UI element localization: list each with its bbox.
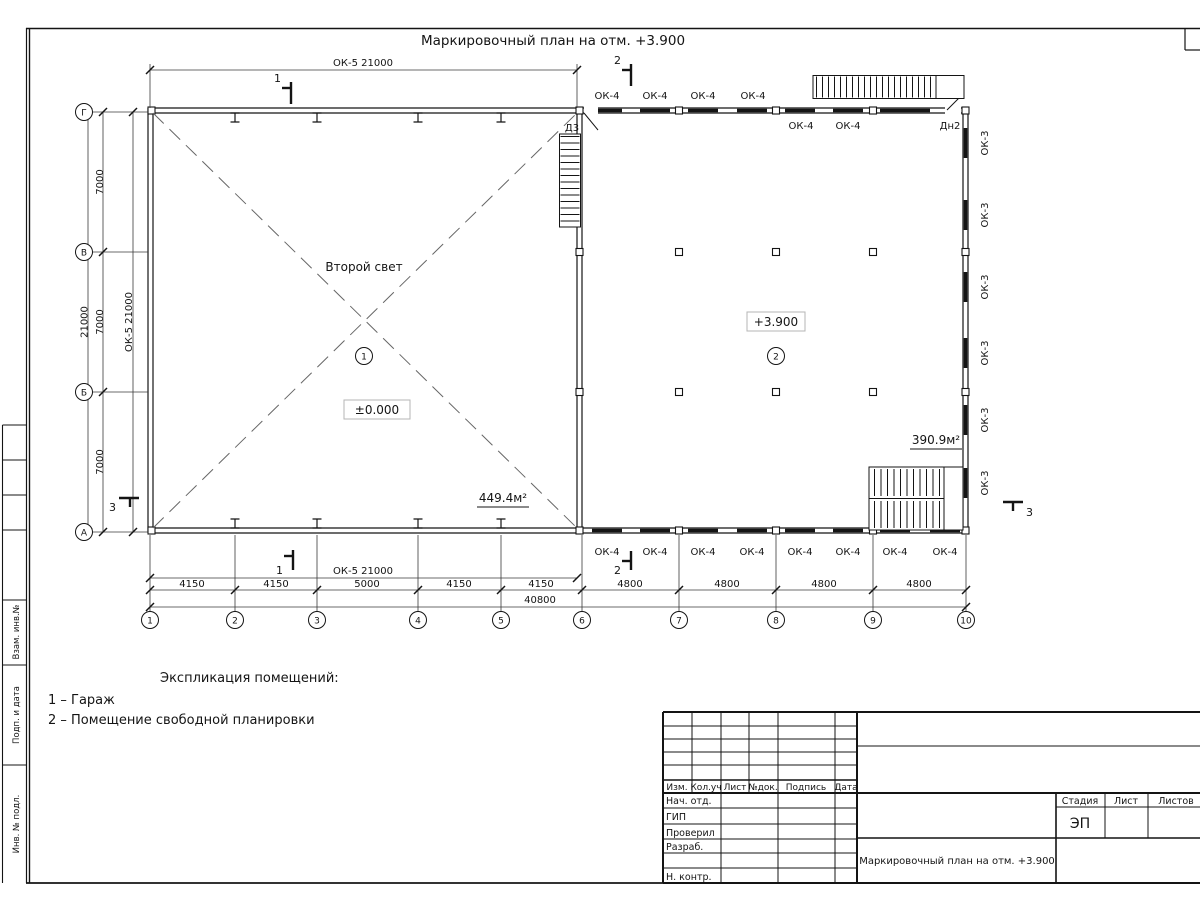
legend-item-1: 1 – Гараж xyxy=(48,693,115,708)
dim-bay: 4800 xyxy=(714,579,739,590)
dim-bay: 4800 xyxy=(811,579,836,590)
ok3-label: ОК-3 xyxy=(980,408,991,433)
room-annotations: Второй свет 1 ±0.000 2 +3.900 449.4м² 39… xyxy=(153,113,962,528)
drawing-sheet: Взам. инв.№ Подп. и дата Инв. № подл. Ма… xyxy=(0,0,1200,900)
ok4-label: ОК-4 xyxy=(836,121,861,132)
tb-stage-header: Стадия xyxy=(1062,796,1098,807)
tb-row-gip: ГИП xyxy=(666,812,686,823)
axis-label: 7 xyxy=(676,617,682,627)
ok4-label: ОК-4 xyxy=(595,91,620,102)
room2-area: 390.9м² xyxy=(912,433,960,447)
axis-label: В xyxy=(81,249,87,259)
axis-label: Г xyxy=(81,109,87,119)
room1-area: 449.4м² xyxy=(479,491,527,505)
tb-col-ndok: №док. xyxy=(748,783,777,793)
dim-7000: 7000 xyxy=(95,449,106,474)
ok4-label: ОК-4 xyxy=(883,547,908,558)
tb-sheets-header: Листов xyxy=(1158,796,1194,807)
column-mark xyxy=(497,519,506,528)
dim-total: 40800 xyxy=(524,595,556,606)
section-1-label: 1 xyxy=(274,72,281,85)
dim-bay: 4800 xyxy=(617,579,642,590)
tb-col-izm: Изм. xyxy=(666,783,687,793)
ok3-label: ОК-3 xyxy=(980,471,991,496)
tb-row-razrab: Разраб. xyxy=(666,842,703,853)
legend-item-2: 2 – Помещение свободной планировки xyxy=(48,713,315,728)
column-mark xyxy=(313,519,322,528)
room1-number: 1 xyxy=(361,353,367,363)
axis-label: 4 xyxy=(415,617,421,627)
axis-label: 1 xyxy=(147,617,153,627)
dim-bay: 5000 xyxy=(354,579,379,590)
section-2-label: 2 xyxy=(614,54,621,67)
legend-title: Экспликация помещений: xyxy=(160,671,339,686)
dim-bay: 4150 xyxy=(528,579,553,590)
tb-col-podpis: Подпись xyxy=(786,783,826,793)
dn2-label: Дн2 xyxy=(940,121,961,132)
door-d3-opening xyxy=(584,106,598,115)
dim-bay: 4150 xyxy=(446,579,471,590)
room2-level: +3.900 xyxy=(754,315,798,329)
section-1-label: 1 xyxy=(276,564,283,577)
frame-label-inv: Инв. № подл. xyxy=(12,795,22,854)
dim-21000: 21000 xyxy=(80,306,91,338)
plan-svg: Взам. инв.№ Подп. и дата Инв. № подл. Ма… xyxy=(0,0,1200,900)
ok4-label: ОК-4 xyxy=(788,547,813,558)
column-mark xyxy=(313,113,322,122)
tb-row-nkontr: Н. контр. xyxy=(666,872,712,883)
column-mark xyxy=(231,519,240,528)
tb-row-proveril: Проверил xyxy=(666,828,715,839)
axis-label: 3 xyxy=(314,617,320,627)
room1-level: ±0.000 xyxy=(355,403,399,417)
ok4-label: ОК-4 xyxy=(789,121,814,132)
plan-title: Маркировочный план на отм. +3.900 xyxy=(421,33,685,49)
dim-ok5-left: ОК-5 21000 xyxy=(124,292,135,352)
column-mark xyxy=(414,519,423,528)
column-mark xyxy=(231,113,240,122)
tb-col-data: Дата xyxy=(834,783,857,793)
tb-stage-value: ЭП xyxy=(1070,816,1090,832)
door-d3-leaf xyxy=(584,113,598,130)
axes-bottom: 1 2 3 4 5 6 7 8 9 10 xyxy=(142,612,975,629)
sheet-frame xyxy=(26,28,1200,883)
dim-ok5-bottom: ОК-5 21000 xyxy=(333,566,393,577)
tb-col-list: Лист xyxy=(724,783,747,793)
ok3-label: ОК-3 xyxy=(980,275,991,300)
dim-7000: 7000 xyxy=(95,309,106,334)
axis-label: 10 xyxy=(960,617,972,627)
frame-side-labels: Взам. инв.№ Подп. и дата Инв. № подл. xyxy=(12,604,22,853)
axis-label: 6 xyxy=(579,617,585,627)
dimension-texts: ОК-5 21000 ОК-5 21000 ОК-5 21000 7000 70… xyxy=(80,58,932,606)
section-3-label: 3 xyxy=(1026,506,1033,519)
ok4-label: ОК-4 xyxy=(741,91,766,102)
dim-bay: 4800 xyxy=(906,579,931,590)
tb-doc-title: Маркировочный план на отм. +3.900 xyxy=(859,856,1055,867)
stairs xyxy=(560,76,965,531)
ok4-label: ОК-4 xyxy=(933,547,958,558)
dim-bay: 4150 xyxy=(263,579,288,590)
tb-row-nachotd: Нач. отд. xyxy=(666,796,712,807)
ok3-label: ОК-3 xyxy=(980,131,991,156)
ok3-label: ОК-3 xyxy=(980,203,991,228)
ok3-label: ОК-3 xyxy=(980,341,991,366)
legend: Экспликация помещений: 1 – Гараж 2 – Пом… xyxy=(48,671,339,728)
axis-label: 5 xyxy=(498,617,504,627)
tb-col-koluch: Кол.уч xyxy=(690,783,721,793)
ok4-label: ОК-4 xyxy=(691,91,716,102)
ok4-label: ОК-4 xyxy=(595,547,620,558)
dim-bay: 4150 xyxy=(179,579,204,590)
ok4-label: ОК-4 xyxy=(836,547,861,558)
axis-label: 9 xyxy=(870,617,876,627)
axis-label: 2 xyxy=(232,617,238,627)
ok4-label: ОК-4 xyxy=(643,547,668,558)
axis-label: Б xyxy=(81,389,87,399)
column-mark xyxy=(497,113,506,122)
room2-number: 2 xyxy=(773,353,779,363)
dim-ok5-top: ОК-5 21000 xyxy=(333,58,393,69)
frame-label-podp: Подп. и дата xyxy=(12,686,22,744)
ok4-label: ОК-4 xyxy=(691,547,716,558)
axis-label: 8 xyxy=(773,617,779,627)
tb-sheet-header: Лист xyxy=(1114,796,1139,807)
columns xyxy=(148,107,969,534)
void-label: Второй свет xyxy=(325,260,402,274)
axis-label: А xyxy=(81,529,88,539)
section-3-label: 3 xyxy=(109,501,116,514)
title-block: Изм. Кол.уч Лист №док. Подпись Дата Нач.… xyxy=(663,712,1200,883)
building-walls xyxy=(148,108,968,533)
frame-label-vzam: Взам. инв.№ xyxy=(12,604,22,659)
door-dn2-opening xyxy=(945,106,961,115)
column-mark xyxy=(414,113,423,122)
section-2-label: 2 xyxy=(614,564,621,577)
d3-label: Д3 xyxy=(565,123,579,134)
ok4-label: ОК-4 xyxy=(643,91,668,102)
ok4-label: ОК-4 xyxy=(740,547,765,558)
dim-7000: 7000 xyxy=(95,169,106,194)
